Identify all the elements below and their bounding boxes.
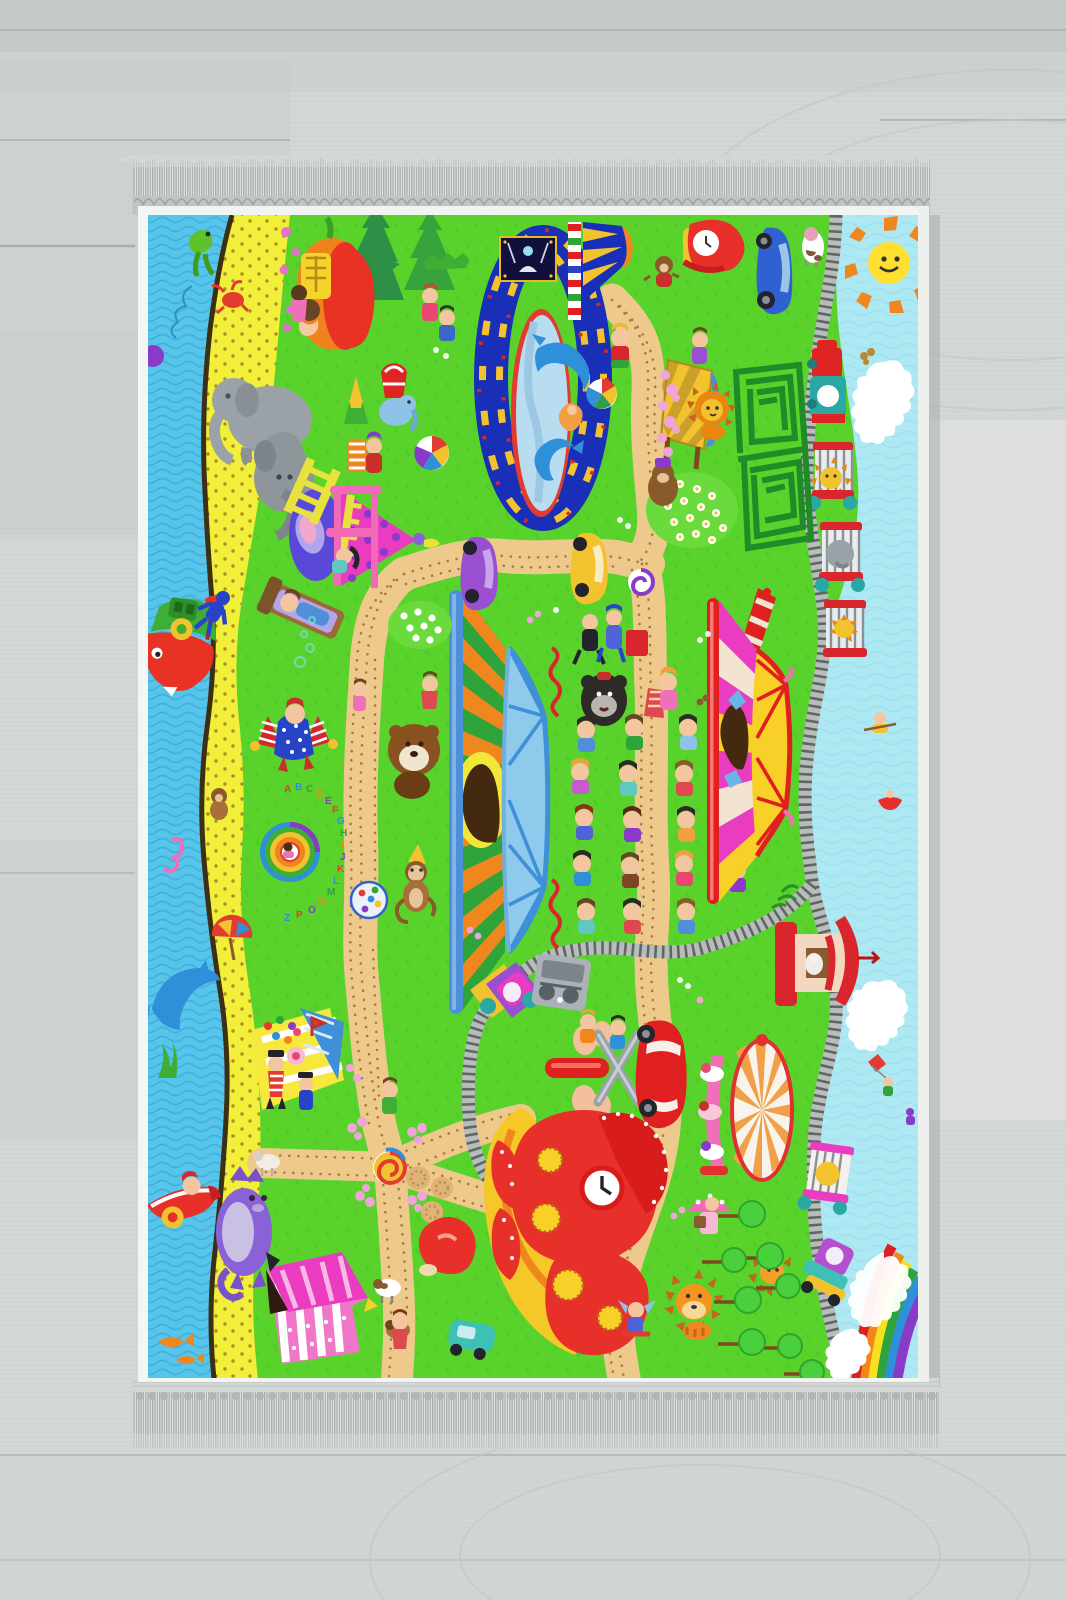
svg-text:O: O [308, 905, 316, 916]
svg-text:P: P [296, 910, 303, 921]
svg-text:H: H [340, 828, 347, 839]
svg-text:E: E [325, 796, 332, 807]
svg-text:B: B [295, 782, 302, 793]
svg-text:Z: Z [284, 913, 290, 924]
svg-text:D: D [316, 789, 323, 800]
svg-text:M: M [327, 887, 335, 898]
svg-text:J: J [340, 852, 346, 863]
svg-text:L: L [333, 876, 339, 887]
svg-text:F: F [332, 805, 338, 816]
svg-text:K: K [337, 864, 345, 875]
svg-text:I: I [341, 840, 344, 851]
svg-text:A: A [284, 784, 291, 795]
svg-text:N: N [318, 897, 325, 908]
svg-text:G: G [337, 816, 345, 827]
svg-text:C: C [306, 784, 313, 795]
